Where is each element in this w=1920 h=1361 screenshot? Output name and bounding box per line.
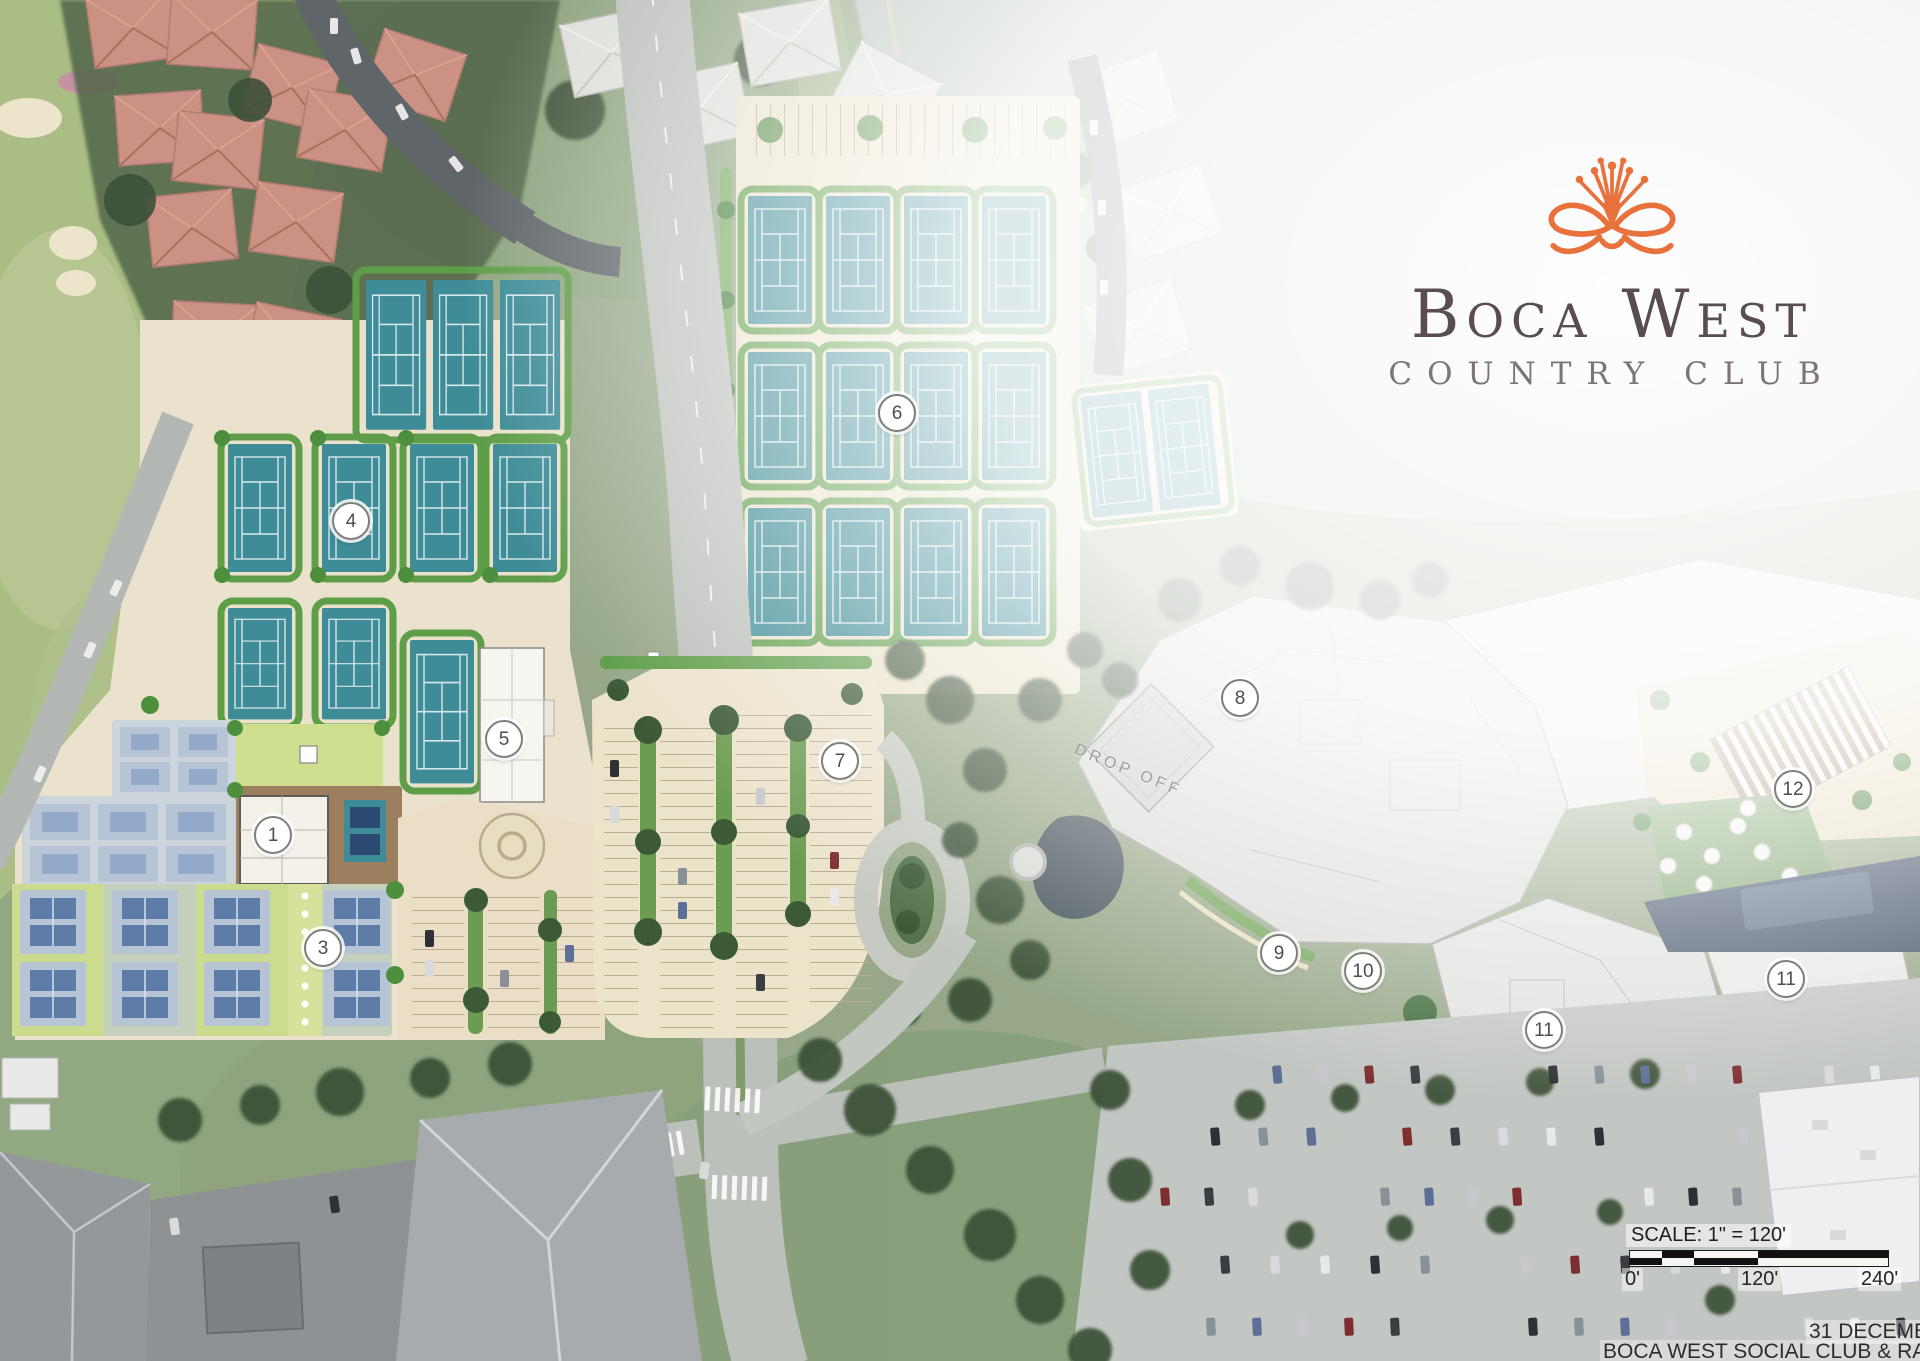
map-marker: 11 [1767,960,1805,998]
logo-subtitle: COUNTRY CLUB [1372,356,1852,392]
scale-bar-block: SCALE: 1" = 120' 0' 120' 240' [1616,1224,1916,1290]
scale-tick-240: 240' [1858,1268,1901,1291]
marker-number: 12 [1782,780,1803,799]
map-marker: 9 [1260,934,1298,972]
flower-icon [1537,148,1687,276]
scale-ticks: 0' 120' 240' [1630,1266,1916,1290]
club-logo: Boca West COUNTRY CLUB [1372,148,1852,392]
scale-tick-120: 120' [1738,1268,1781,1291]
marker-number: 3 [318,939,329,958]
map-marker: 6 [878,394,916,432]
map-marker: 12 [1774,770,1812,808]
marker-number: 10 [1352,962,1373,981]
site-plan-canvas: Boca West COUNTRY CLUB DROP OFF 1 3 4 5 … [0,0,1920,1361]
marker-number: 7 [835,752,846,771]
map-marker: 5 [485,720,523,758]
map-marker: 7 [821,742,859,780]
logo-title: Boca West [1372,282,1852,348]
marker-number: 1 [268,826,279,845]
marker-number: 11 [1776,970,1796,989]
marker-number: 6 [892,404,903,423]
plan-title: BOCA WEST SOCIAL CLUB & RACQUET CE [1600,1340,1920,1361]
marker-number: 9 [1274,944,1285,963]
scale-tick-0: 0' [1622,1268,1643,1291]
marker-number: 8 [1235,689,1246,708]
map-marker: 10 [1344,952,1382,990]
scale-label: SCALE: 1" = 120' [1626,1224,1791,1247]
marker-number: 5 [499,730,510,749]
scale-bar [1630,1251,1888,1266]
map-marker: 4 [332,502,370,540]
map-marker: 11 [1525,1011,1563,1049]
map-marker: 3 [304,929,342,967]
map-marker: 1 [254,816,292,854]
map-marker: 8 [1221,679,1259,717]
marker-number: 4 [346,512,357,531]
marker-number: 11 [1534,1021,1554,1040]
